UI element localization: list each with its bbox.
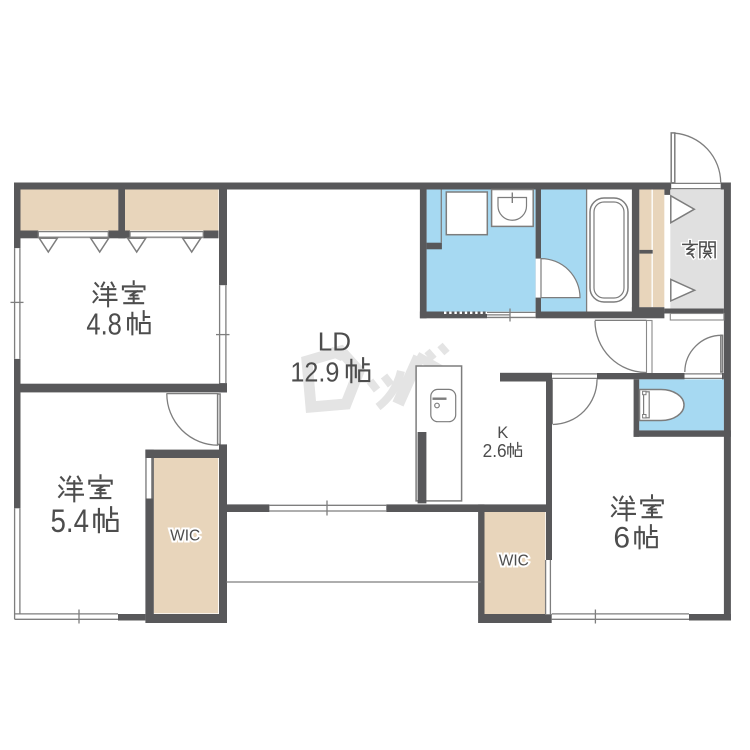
svg-text:12.9: 12.9 [290, 357, 339, 388]
svg-text:6: 6 [613, 522, 630, 555]
svg-text:WIC: WIC [499, 553, 529, 570]
svg-text:LD: LD [318, 327, 351, 357]
svg-text:2.6: 2.6 [483, 440, 507, 461]
svg-text:5.4: 5.4 [51, 503, 90, 539]
svg-text:WIC: WIC [170, 528, 200, 545]
svg-text:4.8: 4.8 [86, 307, 122, 342]
